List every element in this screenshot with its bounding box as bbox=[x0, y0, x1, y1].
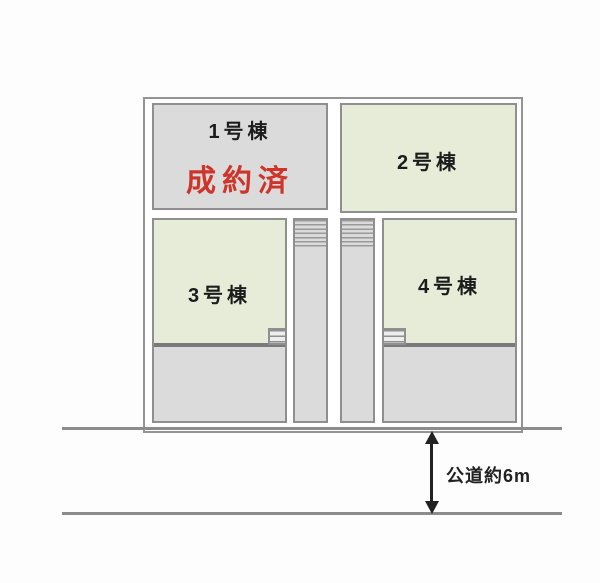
driveway-lot2 bbox=[340, 218, 375, 423]
lot-4-label: 4号棟 bbox=[418, 270, 481, 299]
road-edge-line-near bbox=[62, 427, 562, 430]
slope-hatch-1 bbox=[295, 220, 326, 247]
road-width-label: 公道約6m bbox=[446, 462, 531, 488]
site-plan-canvas: 1号棟 成約済 2号棟 3号棟 4号棟 公道約6m bbox=[0, 0, 600, 583]
lot-3-entry-steps bbox=[268, 328, 285, 345]
lot-1-label: 1号棟 bbox=[154, 115, 326, 144]
slope-hatch-2 bbox=[342, 220, 373, 247]
lot-1-area: 1号棟 成約済 bbox=[152, 103, 328, 210]
lot-3-building: 3号棟 bbox=[154, 220, 285, 347]
lot-2-label: 2号棟 bbox=[397, 146, 460, 175]
road-edge-line-far bbox=[62, 512, 562, 515]
lot-4-area: 4号棟 bbox=[382, 218, 517, 423]
lot-3-label: 3号棟 bbox=[188, 279, 251, 308]
lot-2-area: 2号棟 bbox=[340, 103, 517, 213]
dimension-arrow bbox=[424, 431, 439, 514]
lot-1-sold-badge: 成約済 bbox=[154, 156, 326, 200]
lot-4-entry-steps bbox=[384, 328, 406, 345]
lot-3-area: 3号棟 bbox=[152, 218, 287, 423]
driveway-lot1 bbox=[293, 218, 328, 423]
arrow-shaft bbox=[430, 440, 433, 505]
arrow-down-icon bbox=[425, 501, 439, 514]
